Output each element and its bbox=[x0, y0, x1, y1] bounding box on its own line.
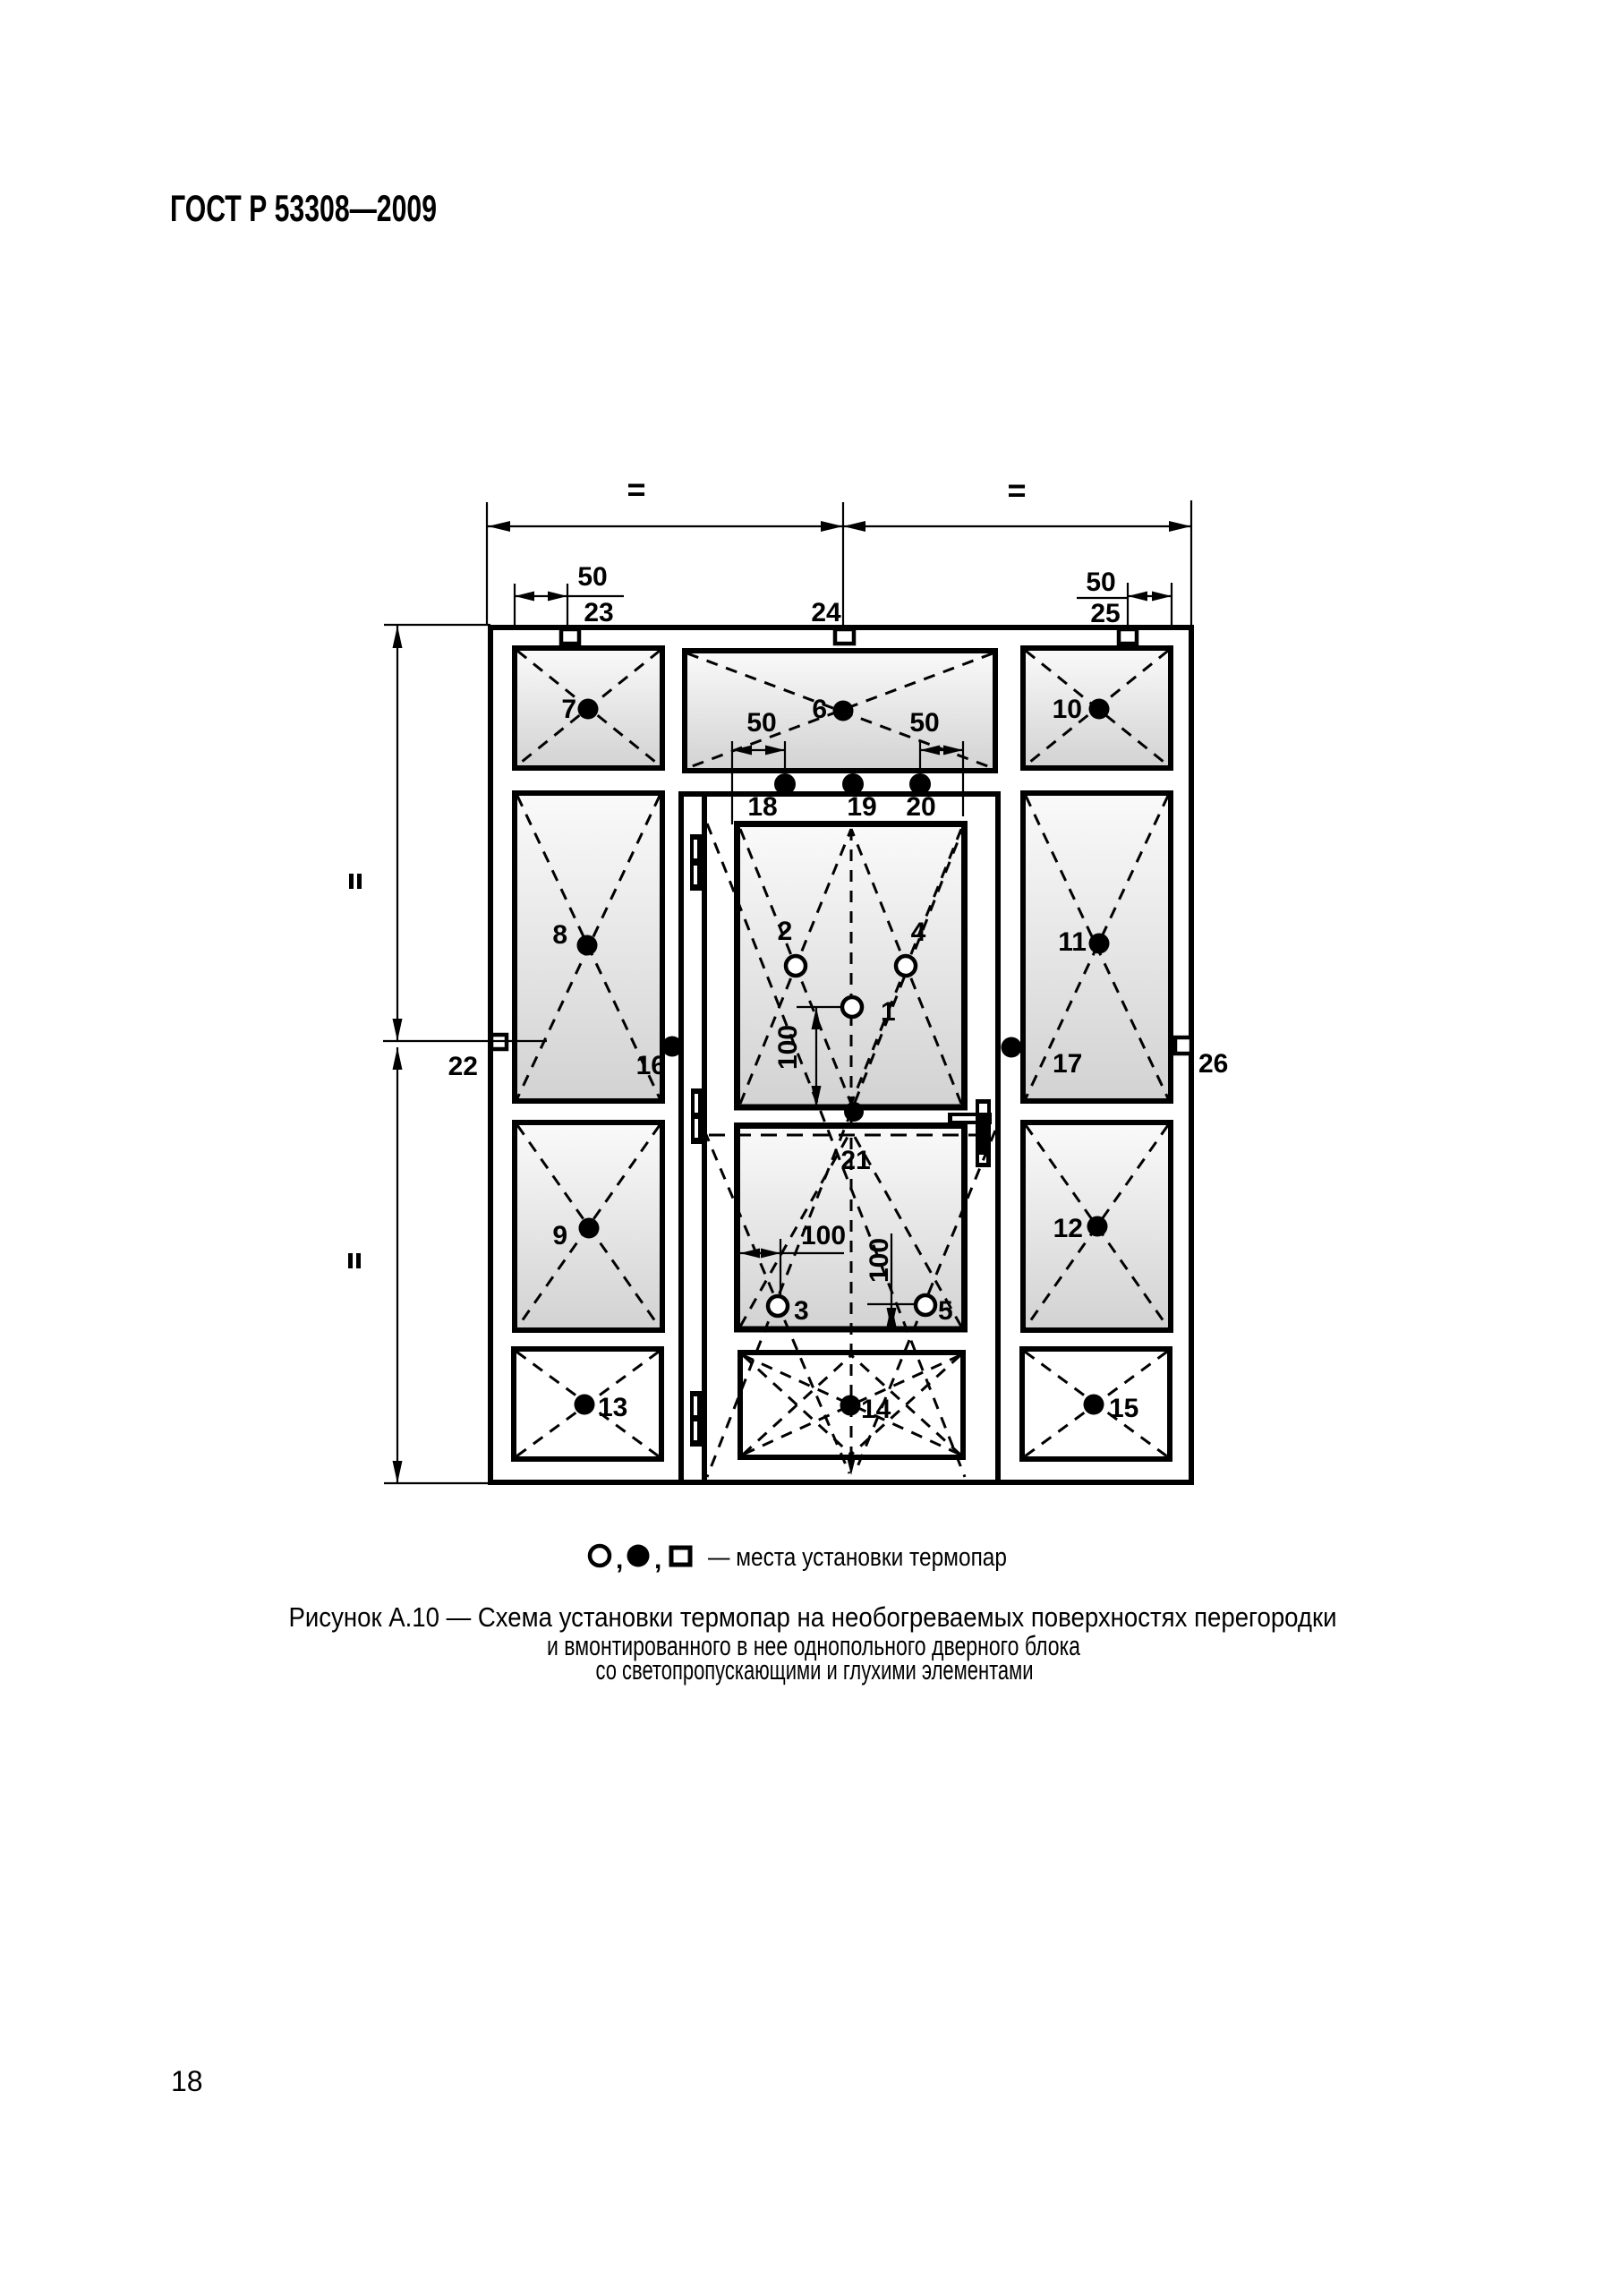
svg-text:,: , bbox=[616, 1545, 623, 1575]
svg-text:6: 6 bbox=[812, 695, 827, 724]
svg-text:50: 50 bbox=[1086, 568, 1115, 597]
svg-text:12: 12 bbox=[1053, 1214, 1083, 1243]
svg-text:18: 18 bbox=[747, 792, 777, 822]
svg-text:со светопропускающими и глухим: со светопропускающими и глухими элемента… bbox=[596, 1654, 1034, 1686]
svg-text:100: 100 bbox=[801, 1221, 846, 1250]
svg-text:1: 1 bbox=[881, 997, 896, 1027]
svg-text:20: 20 bbox=[906, 792, 935, 822]
svg-text:7: 7 bbox=[561, 695, 576, 724]
svg-text:23: 23 bbox=[584, 598, 613, 627]
svg-text:19: 19 bbox=[847, 792, 876, 822]
svg-text:50: 50 bbox=[746, 708, 776, 738]
svg-text:3: 3 bbox=[794, 1296, 809, 1326]
svg-text:8: 8 bbox=[552, 920, 567, 950]
svg-text:,: , bbox=[654, 1545, 661, 1575]
svg-text:5: 5 bbox=[938, 1296, 953, 1326]
svg-text:4: 4 bbox=[911, 918, 926, 947]
svg-text:=: = bbox=[1007, 472, 1026, 508]
svg-text:17: 17 bbox=[1053, 1049, 1082, 1079]
svg-text:ГОСТ Р 53308—2009: ГОСТ Р 53308—2009 bbox=[170, 187, 437, 229]
svg-text:26: 26 bbox=[1198, 1049, 1228, 1079]
svg-text:50: 50 bbox=[909, 708, 939, 738]
svg-text:21: 21 bbox=[840, 1146, 870, 1175]
svg-text:18: 18 bbox=[171, 2065, 203, 2097]
svg-text:14: 14 bbox=[861, 1395, 891, 1424]
svg-text:24: 24 bbox=[811, 598, 841, 627]
svg-text:15: 15 bbox=[1109, 1394, 1138, 1423]
svg-text:Рисунок А.10 — Схема установки: Рисунок А.10 — Схема установки термопар … bbox=[289, 1601, 1337, 1633]
svg-text:25: 25 bbox=[1090, 599, 1120, 628]
svg-text:11: 11 bbox=[1058, 927, 1087, 957]
svg-text:13: 13 bbox=[598, 1393, 627, 1422]
svg-text:10: 10 bbox=[1053, 695, 1082, 724]
svg-text:100: 100 bbox=[865, 1238, 894, 1283]
svg-text:— места установки термопар: — места установки термопар bbox=[708, 1543, 1007, 1572]
svg-text:22: 22 bbox=[448, 1052, 478, 1081]
svg-text:16: 16 bbox=[636, 1051, 666, 1080]
svg-text:2: 2 bbox=[778, 917, 793, 946]
svg-text:=: = bbox=[627, 471, 645, 508]
svg-text:100: 100 bbox=[773, 1025, 803, 1070]
svg-text:50: 50 bbox=[577, 562, 607, 592]
svg-text:9: 9 bbox=[552, 1221, 567, 1250]
